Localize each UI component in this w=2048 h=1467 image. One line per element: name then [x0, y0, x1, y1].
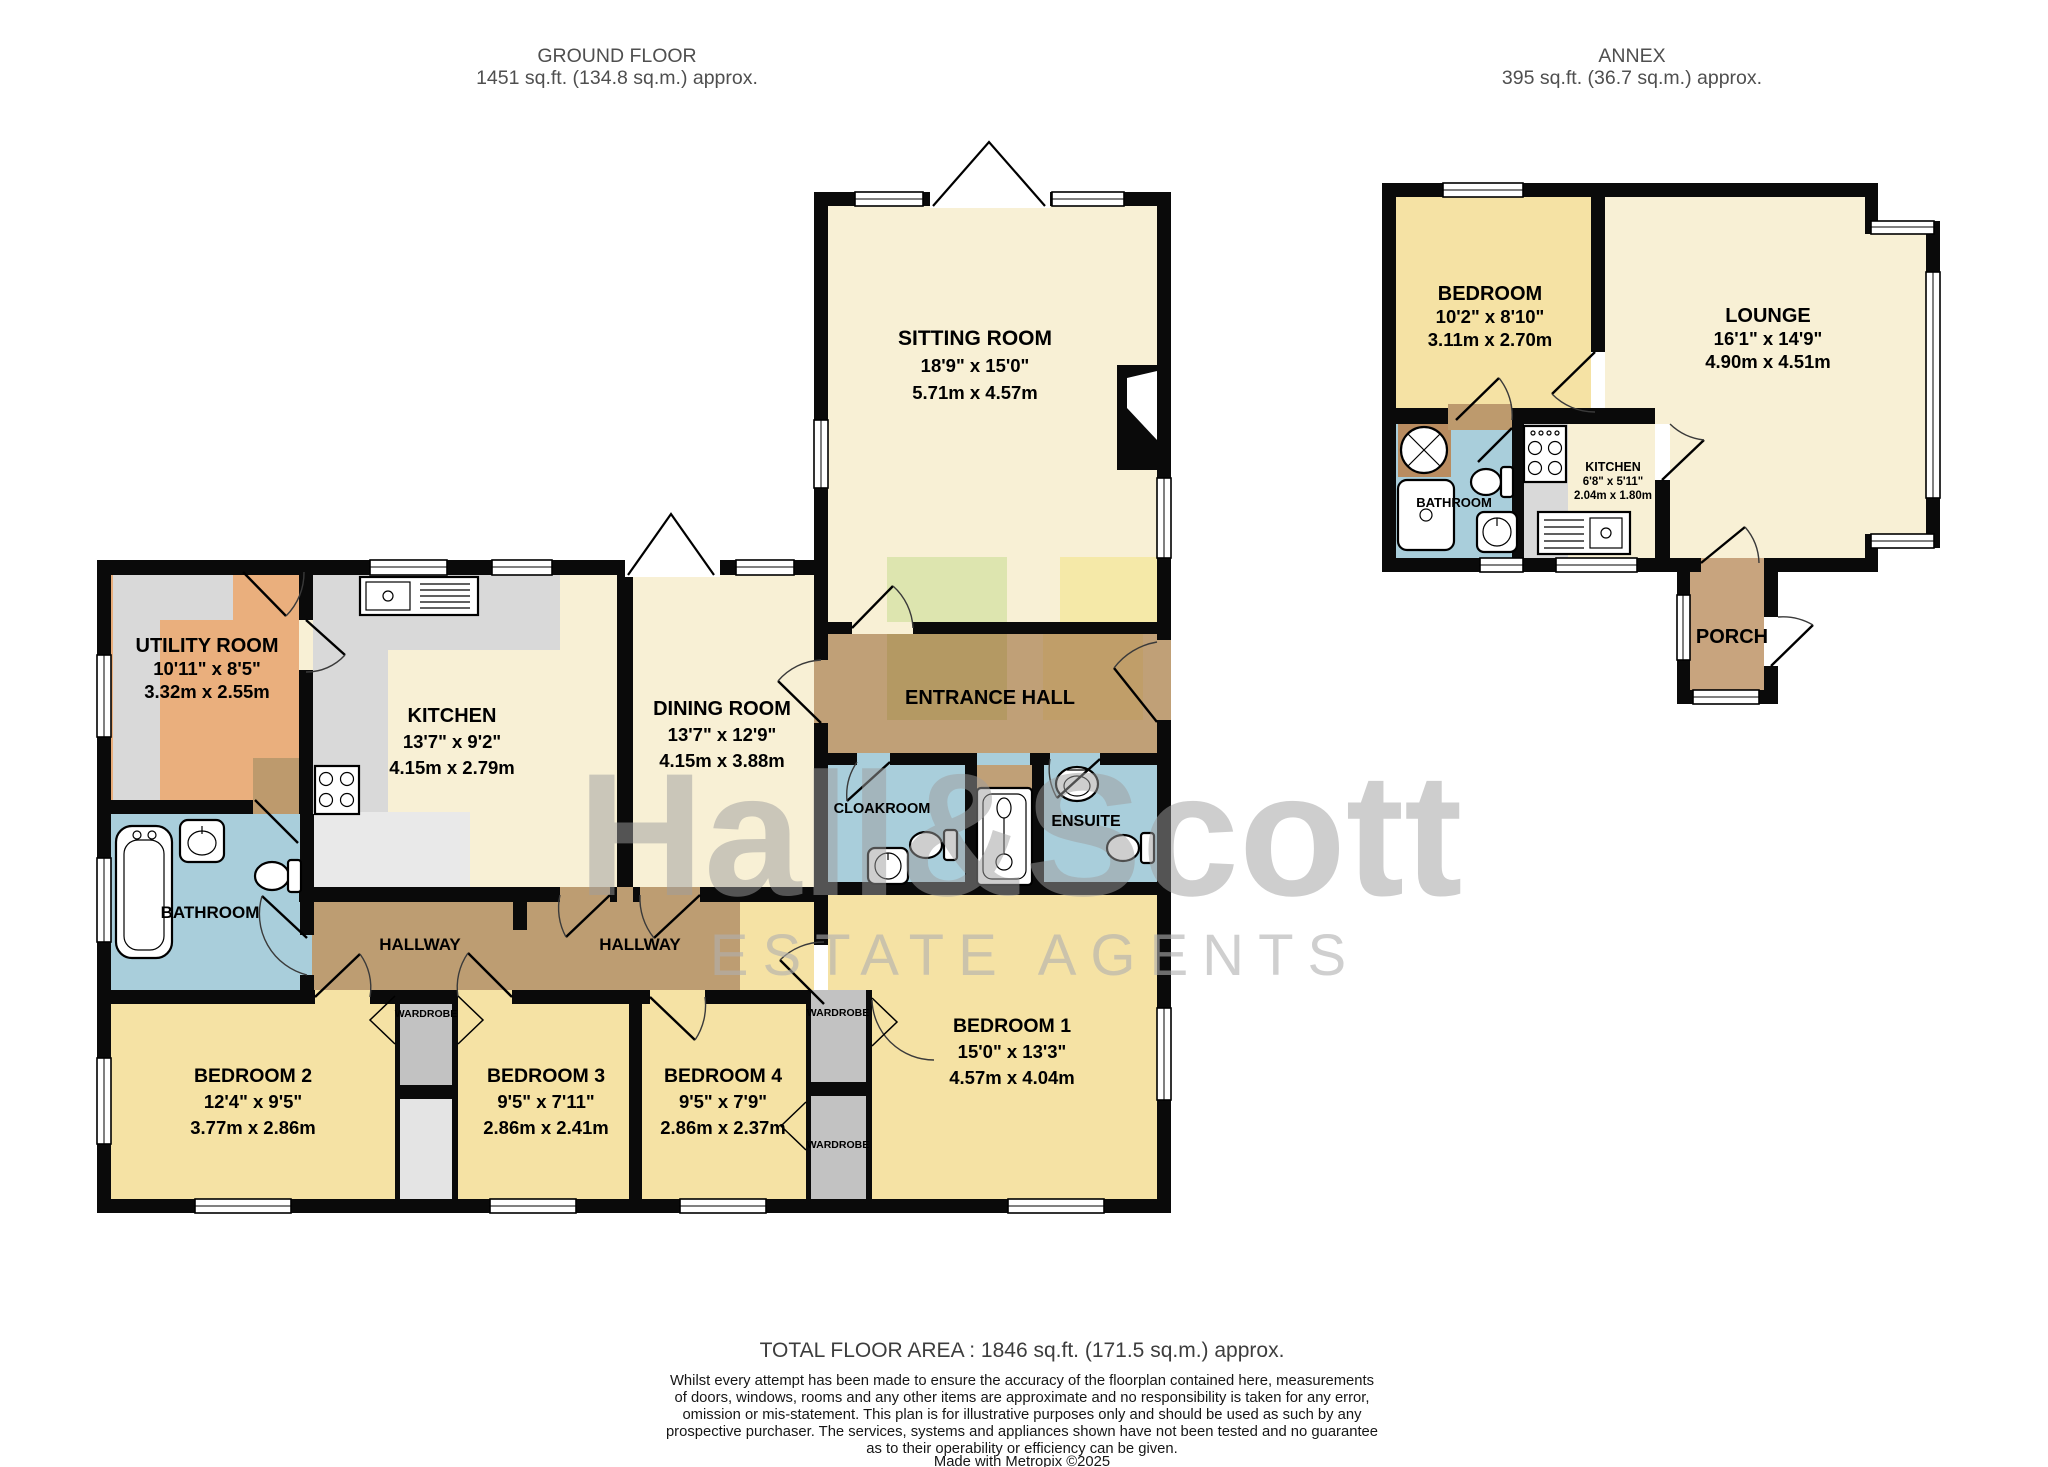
annex-stove-icon	[1524, 426, 1566, 482]
room-kitchen: KITCHEN 13'7" x 9'2" 4.15m x 2.79m	[389, 705, 514, 778]
kitchen-name: KITCHEN	[408, 705, 497, 727]
annex-shower-icon	[1398, 427, 1454, 550]
bedroom-2-metric: 3.77m x 2.86m	[190, 1117, 315, 1138]
bedroom-2-name: BEDROOM 2	[194, 1065, 312, 1087]
porch-name: PORCH	[1696, 626, 1768, 648]
disclaimer-line-2: of doors, windows, rooms and any other i…	[675, 1390, 1370, 1406]
bedroom-1-metric: 4.57m x 4.04m	[949, 1067, 1074, 1088]
annex-kitchen-imperial: 6'8" x 5'11"	[1583, 476, 1644, 488]
wardrobe-label-2: WARDROBE	[807, 1007, 869, 1019]
room-bedroom-4: BEDROOM 4 9'5" x 7'9" 2.86m x 2.37m	[660, 1065, 785, 1138]
floorplan-page: Hall&Scott ESTATE AGENTS GROUND FLOOR 14…	[0, 0, 2048, 1467]
disclaimer-line-1: Whilst every attempt has been made to en…	[670, 1373, 1374, 1389]
footer: TOTAL FLOOR AREA : 1846 sq.ft. (171.5 sq…	[666, 1339, 1378, 1467]
kitchen-imperial: 13'7" x 9'2"	[403, 731, 501, 752]
room-bedroom-1: BEDROOM 1 15'0" x 13'3" 4.57m x 4.04m	[949, 1015, 1074, 1088]
lounge-imperial: 16'1" x 14'9"	[1714, 328, 1823, 349]
utility-room-imperial: 10'11" x 8'5"	[153, 658, 261, 679]
dining-room-name: DINING ROOM	[653, 698, 791, 720]
disclaimer-line-3: omission or mis-statement. This plan is …	[682, 1407, 1362, 1423]
bedroom-3-name: BEDROOM 3	[487, 1065, 605, 1087]
room-annex-bedroom: BEDROOM 10'2" x 8'10" 3.11m x 2.70m	[1428, 283, 1552, 350]
utility-room-metric: 3.32m x 2.55m	[144, 681, 269, 702]
kitchen-sink-icon	[360, 577, 478, 615]
hallway-west-name: HALLWAY	[379, 935, 461, 954]
annex-bedroom-imperial: 10'2" x 8'10"	[1436, 306, 1545, 327]
room-annex-kitchen: KITCHEN 6'8" x 5'11" 2.04m x 1.80m	[1574, 460, 1652, 502]
annex-kitchen-sink-icon	[1538, 512, 1630, 554]
sitting-room-imperial: 18'9" x 15'0"	[921, 355, 1030, 376]
wardrobe-label-3: WARDROBE	[807, 1139, 869, 1151]
annex-bathroom-sink-icon	[1477, 512, 1517, 552]
lounge-metric: 4.90m x 4.51m	[1705, 351, 1830, 372]
annex-kitchen-metric: 2.04m x 1.80m	[1574, 490, 1652, 502]
bath-icon	[116, 826, 172, 958]
sitting-room-metric: 5.71m x 4.57m	[912, 382, 1037, 403]
hob-icon	[315, 766, 359, 814]
bathroom-sink-icon	[180, 820, 224, 862]
annex-floorplan-fills	[1396, 197, 1926, 698]
disclaimer-line-4: prospective purchaser. The services, sys…	[666, 1424, 1378, 1440]
room-utility: UTILITY ROOM 10'11" x 8'5" 3.32m x 2.55m	[136, 635, 279, 702]
lounge-name: LOUNGE	[1725, 305, 1811, 327]
bedroom-1-name: BEDROOM 1	[953, 1015, 1071, 1037]
watermark-tagline: ESTATE AGENTS	[710, 923, 1360, 988]
bathroom-toilet-icon	[255, 860, 301, 892]
utility-room-name: UTILITY ROOM	[136, 635, 279, 657]
entrance-hall-name: ENTRANCE HALL	[905, 687, 1075, 709]
dining-room-metric: 4.15m x 3.88m	[659, 750, 784, 771]
annex-bathroom-name: BATHROOM	[1416, 495, 1492, 510]
room-bedroom-3: BEDROOM 3 9'5" x 7'11" 2.86m x 2.41m	[483, 1065, 608, 1138]
bedroom-1-imperial: 15'0" x 13'3"	[958, 1041, 1067, 1062]
sitting-room-name: SITTING ROOM	[898, 327, 1052, 350]
floorplan-canvas: Hall&Scott ESTATE AGENTS GROUND FLOOR 14…	[0, 0, 2048, 1467]
plan-headers: GROUND FLOOR 1451 sq.ft. (134.8 sq.m.) a…	[476, 45, 1762, 89]
hallway-east-name: HALLWAY	[599, 935, 681, 954]
bedroom-4-name: BEDROOM 4	[664, 1065, 782, 1087]
ground-floor-title: GROUND FLOOR	[537, 45, 696, 67]
bedroom-2-imperial: 12'4" x 9'5"	[204, 1091, 302, 1112]
room-sitting-room: SITTING ROOM 18'9" x 15'0" 5.71m x 4.57m	[898, 327, 1052, 403]
annex-toilet-icon	[1471, 467, 1513, 497]
room-bedroom-2: BEDROOM 2 12'4" x 9'5" 3.77m x 2.86m	[190, 1065, 315, 1138]
bedroom-3-imperial: 9'5" x 7'11"	[497, 1091, 594, 1112]
ground-floor-area: 1451 sq.ft. (134.8 sq.m.) approx.	[476, 67, 758, 89]
annex-bedroom-name: BEDROOM	[1438, 283, 1542, 305]
annex-bedroom-metric: 3.11m x 2.70m	[1428, 329, 1552, 350]
dining-room-imperial: 13'7" x 12'9"	[668, 724, 777, 745]
total-floor-area: TOTAL FLOOR AREA : 1846 sq.ft. (171.5 sq…	[760, 1339, 1285, 1362]
bedroom-4-metric: 2.86m x 2.37m	[660, 1117, 785, 1138]
annex-area: 395 sq.ft. (36.7 sq.m.) approx.	[1502, 67, 1762, 89]
cloakroom-name: CLOAKROOM	[834, 801, 931, 817]
annex-title: ANNEX	[1598, 45, 1665, 67]
room-entrance-hall: ENTRANCE HALL	[905, 687, 1075, 709]
room-dining: DINING ROOM 13'7" x 12'9" 4.15m x 3.88m	[653, 698, 791, 771]
bathroom-name: BATHROOM	[161, 903, 260, 922]
ensuite-name: ENSUITE	[1051, 813, 1121, 830]
kitchen-metric: 4.15m x 2.79m	[389, 757, 514, 778]
watermark: Hall&Scott ESTATE AGENTS	[578, 738, 1463, 988]
annex-kitchen-name: KITCHEN	[1585, 460, 1641, 474]
wardrobe-label-1: WARDROBE	[395, 1008, 457, 1020]
metropix-credit: Made with Metropix ©2025	[934, 1454, 1110, 1467]
bedroom-3-metric: 2.86m x 2.41m	[483, 1117, 608, 1138]
bedroom-4-imperial: 9'5" x 7'9"	[679, 1091, 767, 1112]
